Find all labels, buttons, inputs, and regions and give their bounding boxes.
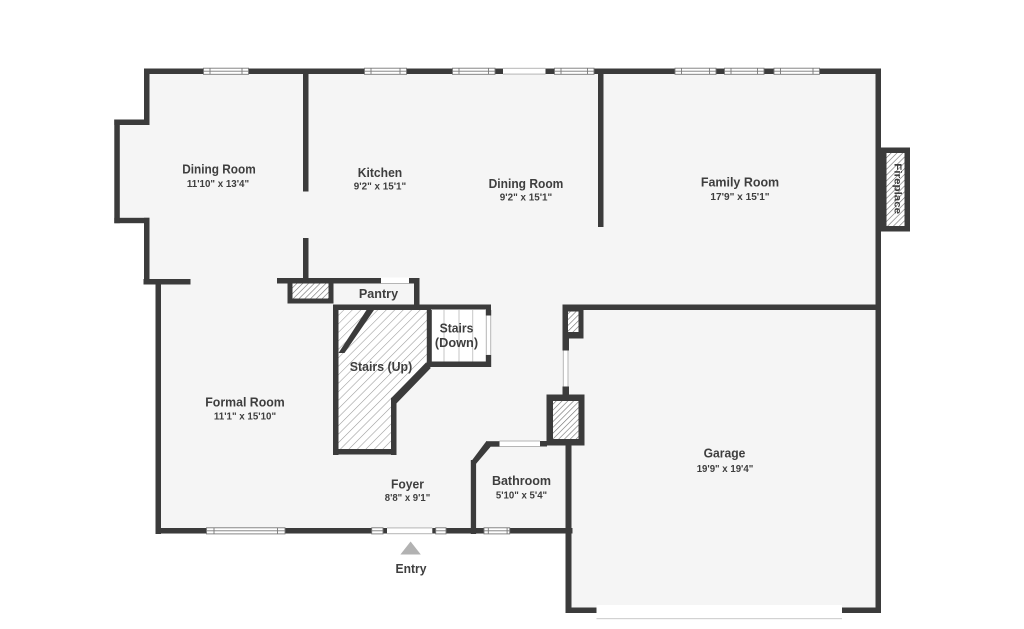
svg-text:Entry: Entry <box>396 561 428 576</box>
svg-text:19'9" x 19'4": 19'9" x 19'4" <box>697 464 754 475</box>
svg-text:Stairs (Up): Stairs (Up) <box>350 359 412 374</box>
svg-text:Stairs: Stairs <box>440 320 474 335</box>
svg-text:Garage: Garage <box>704 446 746 461</box>
svg-text:Family Room: Family Room <box>701 174 779 189</box>
svg-text:Pantry: Pantry <box>359 286 399 301</box>
svg-text:5'10" x 5'4": 5'10" x 5'4" <box>496 490 547 501</box>
svg-text:11'1" x 15'10": 11'1" x 15'10" <box>214 411 276 422</box>
svg-text:9'2" x 15'1": 9'2" x 15'1" <box>500 193 552 204</box>
svg-text:Bathroom: Bathroom <box>492 473 551 488</box>
svg-text:9'2" x 15'1": 9'2" x 15'1" <box>354 182 406 193</box>
svg-text:Fireplace: Fireplace <box>892 163 903 214</box>
svg-text:Kitchen: Kitchen <box>358 165 402 180</box>
svg-text:(Down): (Down) <box>435 335 478 350</box>
svg-text:17'9" x 15'1": 17'9" x 15'1" <box>710 192 769 203</box>
svg-text:11'10" x 13'4": 11'10" x 13'4" <box>187 179 249 190</box>
svg-text:Dining Room: Dining Room <box>182 162 256 177</box>
svg-text:Foyer: Foyer <box>391 477 424 492</box>
svg-text:Formal Room: Formal Room <box>205 395 285 410</box>
svg-text:8'8" x 9'1": 8'8" x 9'1" <box>385 493 431 504</box>
svg-text:Dining Room: Dining Room <box>489 176 564 191</box>
